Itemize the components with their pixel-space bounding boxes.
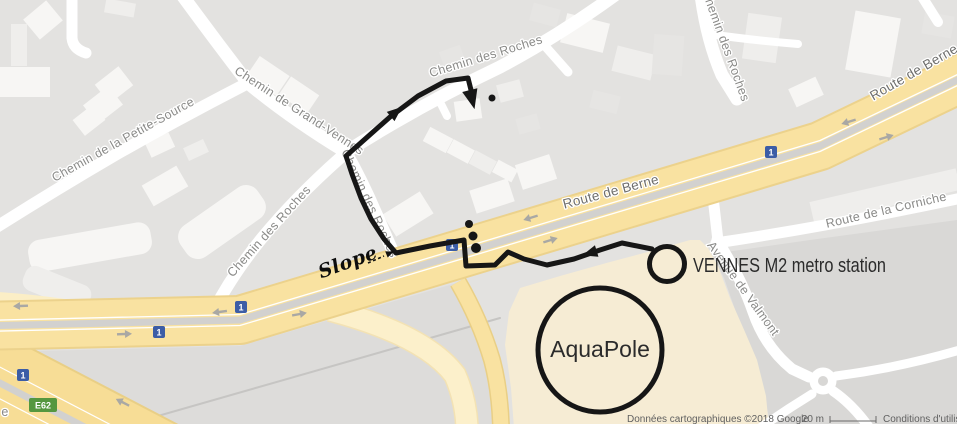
route-1-shield-label: 1: [768, 148, 773, 158]
route-1-shield: 1: [17, 369, 29, 381]
route-1-shield: 1: [153, 326, 165, 338]
route-1-shield-label: 1: [238, 303, 243, 313]
map-screenshot: 1 1 1 1 1 E62 Chemin de la Petite-Source…: [0, 0, 957, 424]
aquapole-label: AquaPole: [550, 336, 650, 362]
metro-station-label: VENNES M2 metro station: [693, 255, 886, 277]
route-1-shield: 1: [235, 301, 247, 313]
crossing-dot: [471, 243, 481, 253]
roundabout-island: [818, 376, 828, 386]
crossing-dot: [465, 220, 473, 228]
attribution-copyright: Données cartographiques ©2018 Google: [627, 414, 809, 424]
street-label-fragment: e: [1, 405, 8, 419]
building: [11, 24, 27, 66]
route-1-shield-label: 1: [20, 371, 25, 381]
scale-label: 20 m: [802, 414, 824, 424]
terms-link[interactable]: Conditions d'utilisation: [883, 414, 957, 424]
attribution-bar: Données cartographiques ©2018 Google 20 …: [627, 414, 957, 424]
map-canvas[interactable]: 1 1 1 1 1 E62 Chemin de la Petite-Source…: [0, 0, 957, 424]
route-1-shield-label: 1: [156, 328, 161, 338]
destination-dot: [489, 95, 496, 102]
destination-building: [454, 98, 483, 121]
e62-shield-label: E62: [35, 401, 51, 411]
building: [652, 34, 685, 76]
e62-shield: E62: [29, 398, 57, 412]
route-1-shield: 1: [765, 146, 777, 158]
building: [0, 67, 50, 97]
crossing-dot: [469, 232, 478, 241]
